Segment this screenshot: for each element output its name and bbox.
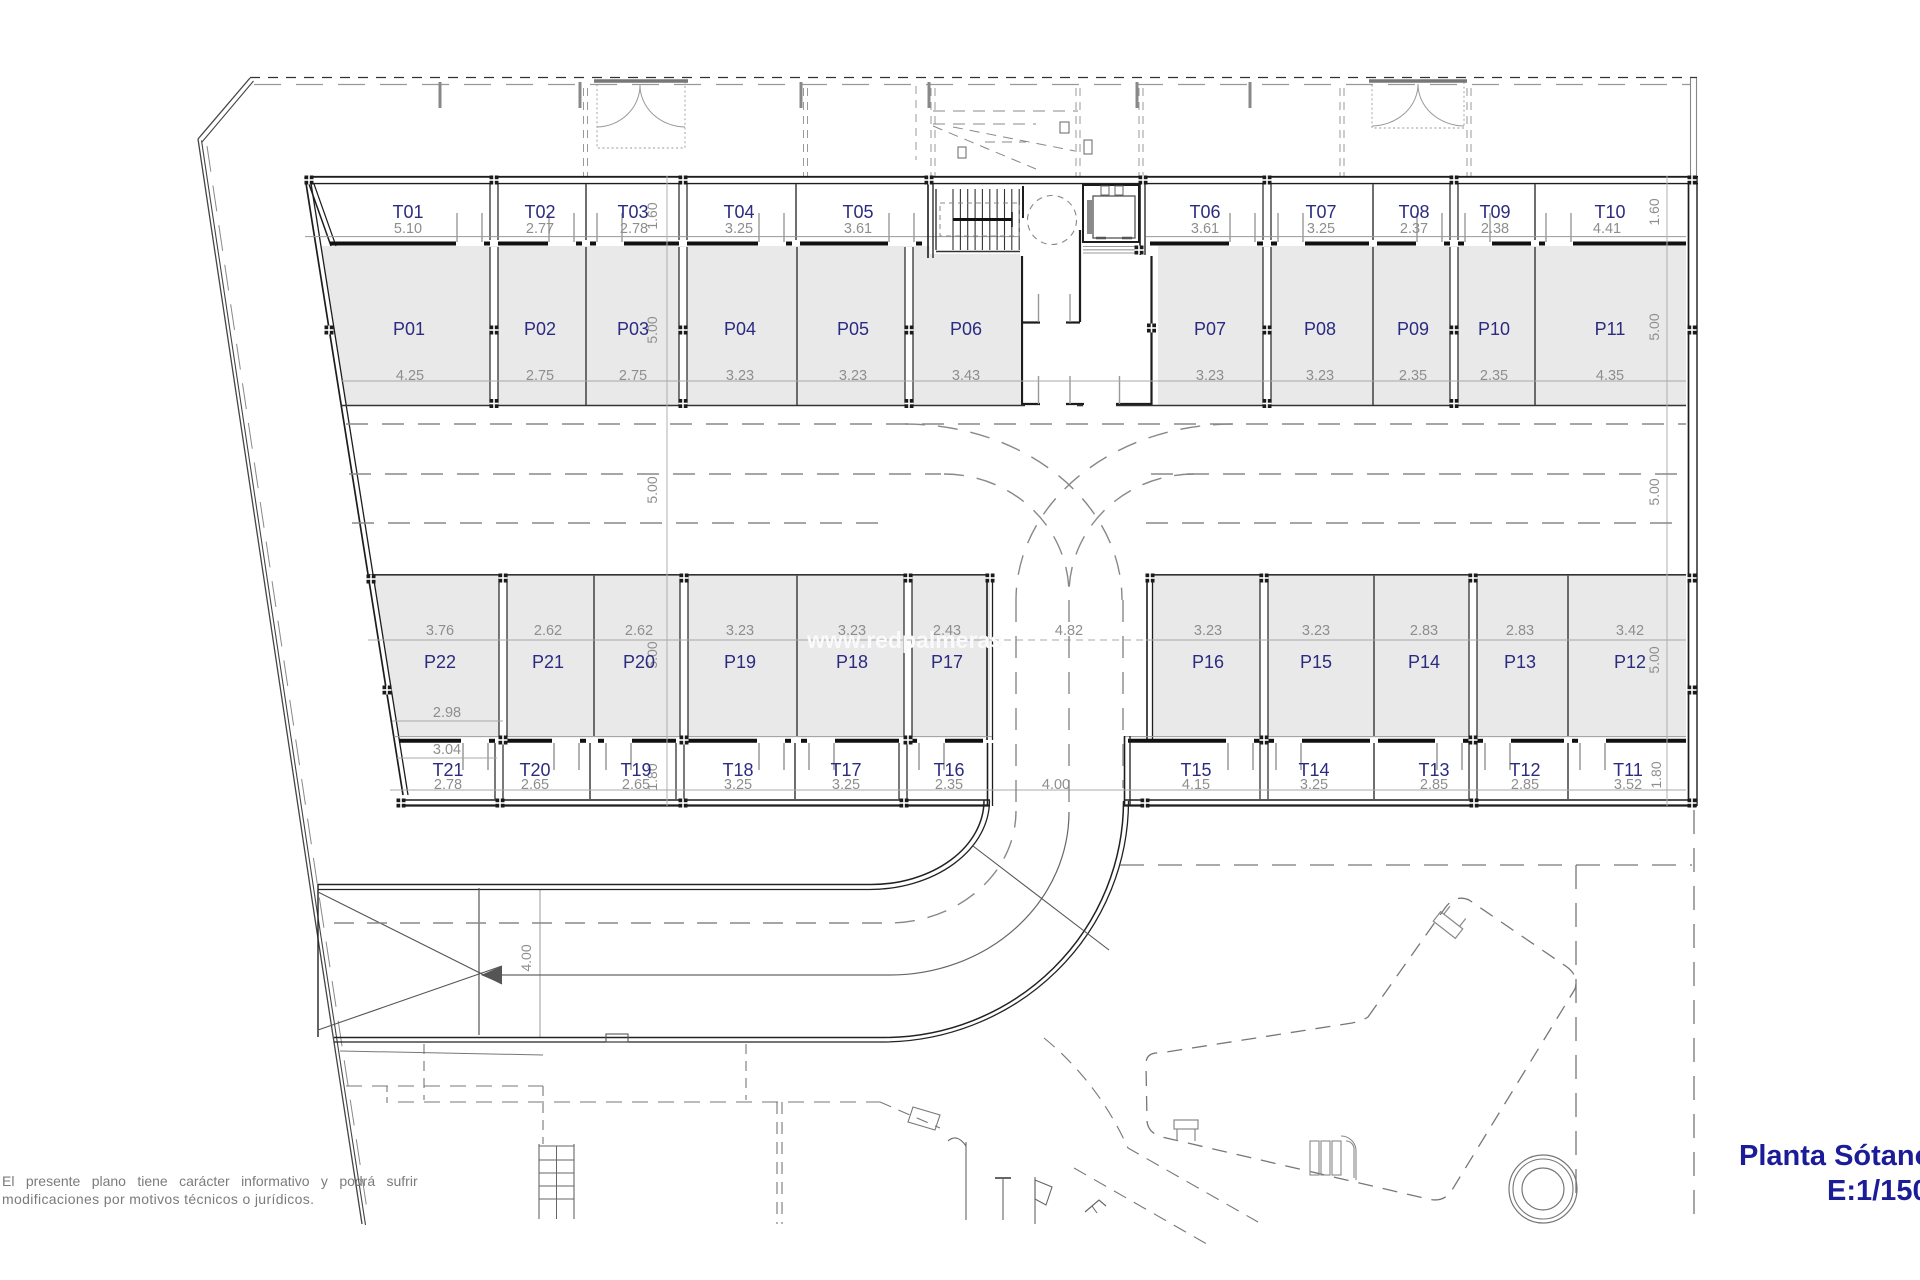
- svg-text:2.65: 2.65: [521, 777, 549, 793]
- svg-text:3.25: 3.25: [724, 777, 752, 793]
- svg-text:1.60: 1.60: [1646, 198, 1662, 225]
- svg-text:T03: T03: [617, 202, 648, 222]
- svg-text:P05: P05: [837, 319, 869, 339]
- svg-text:T09: T09: [1479, 202, 1510, 222]
- svg-text:4.35: 4.35: [1596, 368, 1624, 384]
- svg-text:1.80: 1.80: [1648, 761, 1664, 788]
- svg-text:P09: P09: [1397, 319, 1429, 339]
- svg-text:P15: P15: [1300, 652, 1332, 672]
- svg-text:P11: P11: [1595, 319, 1626, 339]
- svg-text:3.61: 3.61: [1191, 221, 1219, 237]
- svg-text:4.25: 4.25: [396, 368, 424, 384]
- svg-text:4.15: 4.15: [1182, 777, 1210, 793]
- svg-text:2.83: 2.83: [1410, 623, 1438, 639]
- svg-text:2.85: 2.85: [1420, 777, 1448, 793]
- svg-text:5.00: 5.00: [1646, 313, 1662, 340]
- svg-text:T04: T04: [723, 202, 754, 222]
- svg-text:4.00: 4.00: [518, 944, 534, 971]
- svg-text:4.41: 4.41: [1593, 221, 1621, 237]
- svg-text:P13: P13: [1504, 652, 1536, 672]
- svg-text:3.23: 3.23: [1302, 623, 1330, 639]
- svg-text:2.37: 2.37: [1400, 221, 1428, 237]
- svg-text:2.35: 2.35: [1399, 368, 1427, 384]
- svg-text:T01: T01: [392, 202, 423, 222]
- svg-text:5.10: 5.10: [394, 221, 422, 237]
- svg-text:El presente plano tiene caráct: El presente plano tiene carácter informa…: [2, 1173, 418, 1189]
- svg-text:T06: T06: [1189, 202, 1220, 222]
- svg-text:T02: T02: [524, 202, 555, 222]
- svg-text:3.23: 3.23: [726, 368, 754, 384]
- svg-text:3.76: 3.76: [426, 623, 454, 639]
- svg-text:5.00: 5.00: [1646, 646, 1662, 673]
- svg-text:P21: P21: [532, 652, 564, 672]
- svg-text:P06: P06: [950, 319, 982, 339]
- svg-text:T05: T05: [842, 202, 873, 222]
- svg-text:P16: P16: [1192, 652, 1224, 672]
- svg-text:3.25: 3.25: [725, 221, 753, 237]
- svg-text:3.61: 3.61: [844, 221, 872, 237]
- svg-text:P12: P12: [1614, 652, 1646, 672]
- svg-text:2.75: 2.75: [619, 368, 647, 384]
- svg-text:2.85: 2.85: [1511, 777, 1539, 793]
- svg-text:P04: P04: [724, 319, 756, 339]
- svg-text:3.23: 3.23: [1196, 368, 1224, 384]
- svg-text:Planta Sótano: Planta Sótano: [1739, 1140, 1920, 1172]
- svg-text:5.00: 5.00: [1646, 478, 1662, 505]
- svg-text:3.43: 3.43: [952, 368, 980, 384]
- svg-text:T08: T08: [1398, 202, 1429, 222]
- svg-text:3.25: 3.25: [832, 777, 860, 793]
- svg-text:P14: P14: [1408, 652, 1440, 672]
- svg-text:P17: P17: [931, 652, 963, 672]
- svg-text:P01: P01: [393, 319, 425, 339]
- svg-text:T10: T10: [1594, 202, 1625, 222]
- svg-text:2.35: 2.35: [935, 777, 963, 793]
- svg-text:P03: P03: [617, 319, 649, 339]
- svg-text:2.38: 2.38: [1481, 221, 1509, 237]
- svg-text:5.00: 5.00: [644, 476, 660, 503]
- svg-text:3.23: 3.23: [1306, 368, 1334, 384]
- svg-text:3.23: 3.23: [726, 623, 754, 639]
- svg-text:P02: P02: [524, 319, 556, 339]
- svg-text:3.25: 3.25: [1300, 777, 1328, 793]
- svg-text:P22: P22: [424, 652, 456, 672]
- svg-text:T07: T07: [1305, 202, 1336, 222]
- svg-text:P20: P20: [623, 652, 655, 672]
- svg-text:3.23: 3.23: [839, 368, 867, 384]
- svg-text:2.62: 2.62: [534, 623, 562, 639]
- svg-text:3.04: 3.04: [433, 742, 461, 758]
- svg-text:3.52: 3.52: [1614, 777, 1642, 793]
- svg-text:www.redpalmeras: www.redpalmeras: [806, 627, 1003, 653]
- svg-text:2.75: 2.75: [526, 368, 554, 384]
- svg-text:3.42: 3.42: [1616, 623, 1644, 639]
- svg-text:2.62: 2.62: [625, 623, 653, 639]
- svg-text:modificaciones por motivos téc: modificaciones por motivos técnicos o ju…: [2, 1191, 314, 1207]
- svg-text:2.98: 2.98: [433, 705, 461, 721]
- svg-text:2.78: 2.78: [620, 221, 648, 237]
- svg-text:P08: P08: [1304, 319, 1336, 339]
- svg-text:3.23: 3.23: [1194, 623, 1222, 639]
- svg-text:2.78: 2.78: [434, 777, 462, 793]
- svg-text:P07: P07: [1194, 319, 1226, 339]
- svg-text:4.00: 4.00: [1042, 777, 1070, 793]
- svg-text:2.65: 2.65: [622, 777, 650, 793]
- svg-text:P10: P10: [1478, 319, 1510, 339]
- svg-text:P18: P18: [836, 652, 868, 672]
- svg-text:3.25: 3.25: [1307, 221, 1335, 237]
- svg-text:2.83: 2.83: [1506, 623, 1534, 639]
- svg-text:2.35: 2.35: [1480, 368, 1508, 384]
- svg-text:P19: P19: [724, 652, 756, 672]
- svg-text:2.77: 2.77: [526, 221, 554, 237]
- svg-text:E:1/150: E:1/150: [1827, 1175, 1920, 1207]
